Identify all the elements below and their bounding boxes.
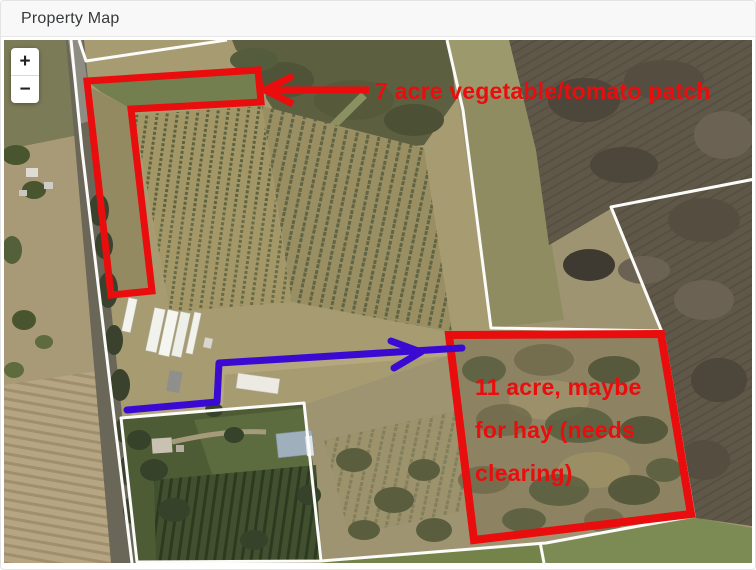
label-11acre-hay: 11 acre, maybe for hay (needs clearing) [475, 366, 641, 495]
house-parcel [121, 403, 321, 562]
label-11acre-line3: clearing) [475, 452, 641, 495]
card-header: Property Map [1, 1, 755, 37]
label-7acre-patch: 7 acre vegetable/tomato patch [375, 78, 711, 105]
page-title: Property Map [21, 10, 119, 28]
property-map-card: Property Map [0, 0, 756, 570]
house-roof [152, 437, 173, 453]
map-zoom-control: + − [11, 48, 39, 103]
label-11acre-line1: 11 acre, maybe [475, 366, 641, 409]
label-11acre-line2: for hay (needs [475, 409, 641, 452]
zoom-in-button[interactable]: + [11, 48, 39, 75]
map-canvas[interactable]: + − 7 acre vegetable/tomato patch 11 acr… [4, 40, 752, 563]
zoom-out-button[interactable]: − [11, 75, 39, 103]
card-body: + − 7 acre vegetable/tomato patch 11 acr… [1, 37, 755, 566]
